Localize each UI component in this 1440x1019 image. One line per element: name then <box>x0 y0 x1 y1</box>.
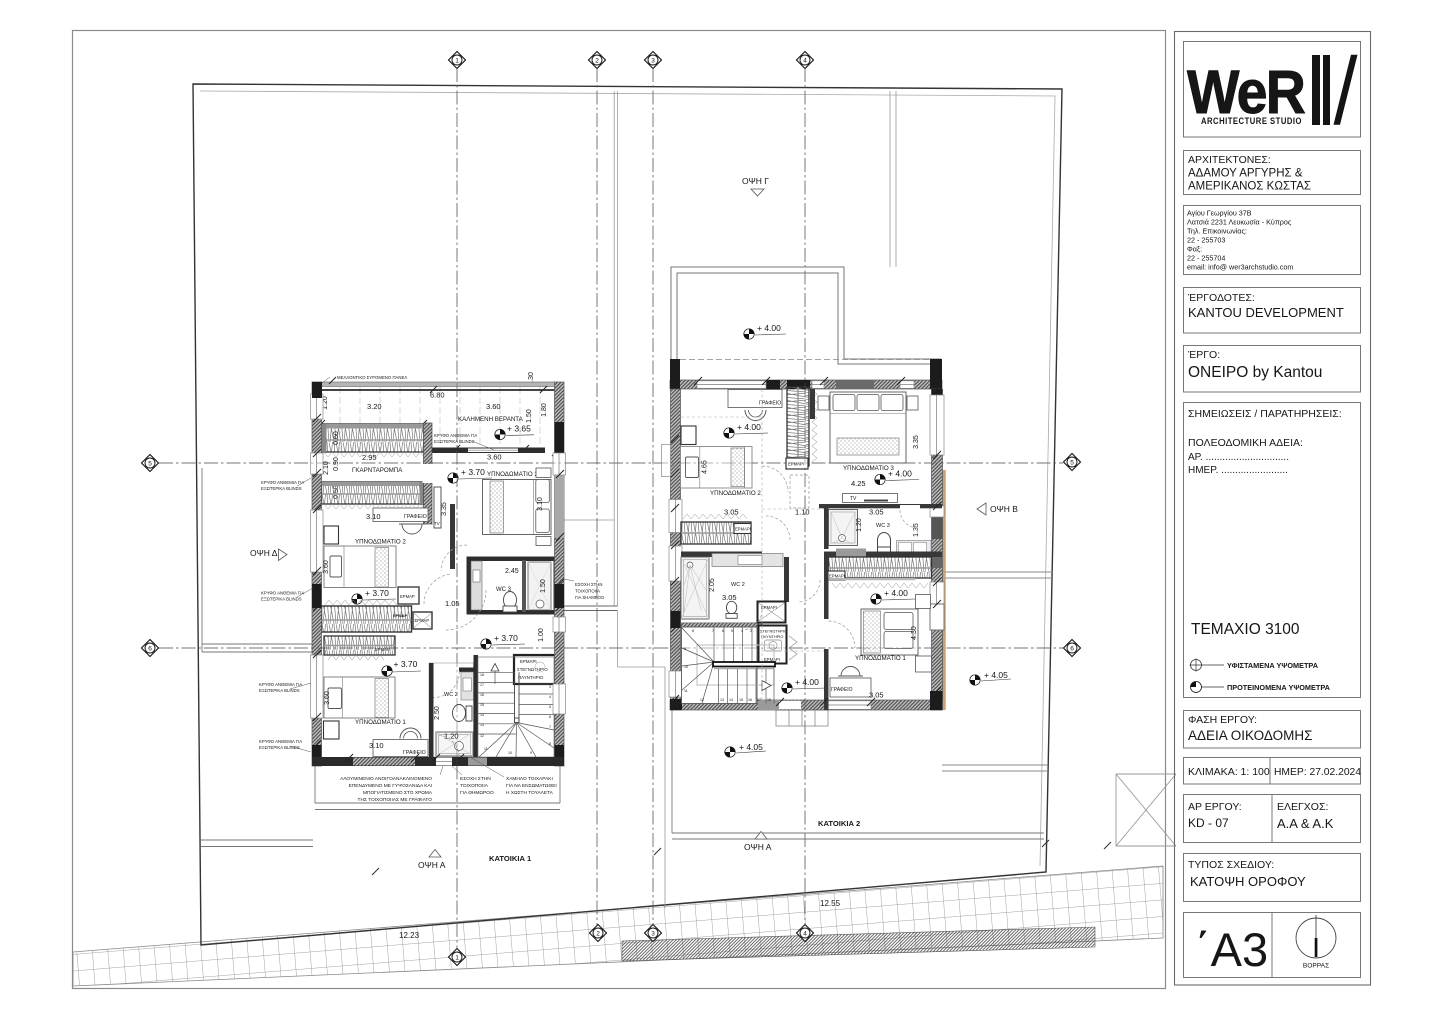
svg-text:3.35: 3.35 <box>441 502 448 516</box>
svg-text:3.05: 3.05 <box>869 691 884 700</box>
svg-text:11: 11 <box>684 689 688 693</box>
svg-text:ΥΠΝΟΔΩΜΑΤΙΟ 2: ΥΠΝΟΔΩΜΑΤΙΟ 2 <box>710 490 761 497</box>
svg-text:TV: TV <box>850 496 857 502</box>
svg-text:+ 4.00: + 4.00 <box>884 588 908 598</box>
svg-text:6: 6 <box>549 715 551 719</box>
svg-text:+ 3.70: + 3.70 <box>394 659 418 669</box>
svg-text:ΟΨΗ Δ: ΟΨΗ Δ <box>250 548 278 558</box>
svg-text:ΓΙΑ ΝΑ ΕΝΣΩΜΑΤΩΘΕΙ: ΓΙΑ ΝΑ ΕΝΣΩΜΑΤΩΘΕΙ <box>506 783 557 789</box>
svg-text:ΑΛΟΥΜΙΝΕΝΙΟ ΑΝΟΙΓΟΑΝΑΚΛΙΝΟΜΕΝΟ: ΑΛΟΥΜΙΝΕΝΙΟ ΑΝΟΙΓΟΑΝΑΚΛΙΝΟΜΕΝΟ <box>340 776 432 782</box>
svg-text:ΟΨΗ Β: ΟΨΗ Β <box>990 504 1018 514</box>
svg-text:ΕΛΕΓΧΟΣ:: ΕΛΕΓΧΟΣ: <box>1277 801 1328 813</box>
svg-text:ΠΟΛΕΟΔΟΜΙΚΗ ΑΔΕΙΑ:: ΠΟΛΕΟΔΟΜΙΚΗ ΑΔΕΙΑ: <box>1188 437 1303 449</box>
svg-text:+ 3.70: + 3.70 <box>461 467 485 477</box>
svg-text:ΣΗΜΕΙΩΣΕΙΣ / ΠΑΡΑΤΗΡΗΣΕΙΣ:: ΣΗΜΕΙΩΣΕΙΣ / ΠΑΡΑΤΗΡΗΣΕΙΣ: <box>1188 408 1342 420</box>
svg-text:1.20: 1.20 <box>856 518 863 532</box>
svg-text:ΥΠΝΟΔΩΜΑΤΙΟ 1: ΥΠΝΟΔΩΜΑΤΙΟ 1 <box>355 719 406 726</box>
svg-text:΄Α3: ΄Α3 <box>1195 923 1268 976</box>
svg-text:4: 4 <box>741 629 743 633</box>
svg-text:ΥΠΝΟΔΩΜΑΤΙΟ 3: ΥΠΝΟΔΩΜΑΤΙΟ 3 <box>843 465 894 472</box>
svg-text:4: 4 <box>803 58 807 65</box>
svg-text:3.60: 3.60 <box>324 691 331 705</box>
svg-text:12.55: 12.55 <box>820 899 841 908</box>
svg-text:3: 3 <box>651 58 655 65</box>
svg-text:3.10: 3.10 <box>366 512 381 521</box>
svg-text:8: 8 <box>692 629 694 633</box>
svg-text:ΒΟΡΡΑΣ: ΒΟΡΡΑΣ <box>1303 963 1329 970</box>
svg-text:12: 12 <box>480 734 484 738</box>
svg-text:ΑΡ. ..........................: ΑΡ. .............................. <box>1188 452 1289 463</box>
svg-text:+ 3.70: + 3.70 <box>494 633 518 643</box>
svg-text:ΑΔΑΜΟΥ ΑΡΓΥΡΗΣ &: ΑΔΑΜΟΥ ΑΡΓΥΡΗΣ & <box>1188 168 1303 180</box>
svg-text:ΕΣΟΧΗ ΣΤΗΝ: ΕΣΟΧΗ ΣΤΗΝ <box>575 582 603 587</box>
svg-text:7: 7 <box>712 629 714 633</box>
svg-text:10: 10 <box>684 665 688 669</box>
svg-text:ΕΞΩΤΕΡΙΚΑ BLINDS: ΕΞΩΤΕΡΙΚΑ BLINDS <box>434 439 475 444</box>
svg-text:ΗΜΕΡ: 27.02.2024: ΗΜΕΡ: 27.02.2024 <box>1274 767 1361 778</box>
svg-text:ΟΨΗ Α: ΟΨΗ Α <box>744 842 772 852</box>
svg-text:9: 9 <box>684 647 686 651</box>
svg-text:TV: TV <box>434 521 440 526</box>
svg-text:16: 16 <box>748 698 752 702</box>
svg-text:ΣΤΕΓΝΩΤΗΡΙΟ: ΣΤΕΓΝΩΤΗΡΙΟ <box>517 667 548 672</box>
svg-text:+ 4.05: + 4.05 <box>984 670 1008 680</box>
svg-text:+ 4.05: + 4.05 <box>739 742 763 752</box>
svg-text:2.05: 2.05 <box>709 578 716 592</box>
svg-text:WC 3: WC 3 <box>876 523 890 529</box>
svg-text:Λατσιά 2231 Λευκωσία - Κύπρος: Λατσιά 2231 Λευκωσία - Κύπρος <box>1187 218 1292 227</box>
svg-text:3.10: 3.10 <box>369 741 384 750</box>
svg-text:3.20: 3.20 <box>367 402 382 411</box>
svg-text:2.45: 2.45 <box>505 568 519 575</box>
svg-text:A.A & A.K: A.A & A.K <box>1277 816 1334 831</box>
svg-text:ΟΨΗ Α: ΟΨΗ Α <box>418 860 446 870</box>
svg-text:Η ΧΩΣΤΗ ΤΟΥΑΛΕΤΑ: Η ΧΩΣΤΗ ΤΟΥΑΛΕΤΑ <box>506 790 554 796</box>
svg-text:5: 5 <box>1070 460 1074 467</box>
svg-text:KD - 07: KD - 07 <box>1188 816 1229 830</box>
svg-text:12: 12 <box>700 698 704 702</box>
svg-text:ΚΛΙΜΑΚΑ: 1: 100: ΚΛΙΜΑΚΑ: 1: 100 <box>1188 766 1270 778</box>
svg-text:8: 8 <box>549 742 551 746</box>
svg-text:3: 3 <box>549 685 551 689</box>
svg-text:13: 13 <box>720 698 724 702</box>
svg-text:1.50: 1.50 <box>526 409 533 423</box>
svg-text:1.35: 1.35 <box>913 523 920 537</box>
svg-text:ΚΡΥΦΟ ΑΝΘΕΜΙΑ ΓΙΑ: ΚΡΥΦΟ ΑΝΘΕΜΙΑ ΓΙΑ <box>261 480 304 485</box>
svg-text:+ 4.00: + 4.00 <box>888 469 912 479</box>
svg-text:3.35: 3.35 <box>913 435 920 449</box>
svg-text:ΠΡΟΤΕΙΝΟΜΕΝΑ ΥΨΟΜΕΤΡΑ: ΠΡΟΤΕΙΝΟΜΕΝΑ ΥΨΟΜΕΤΡΑ <box>1227 683 1331 692</box>
svg-text:ΕΡΜΑΡΙ: ΕΡΜΑΡΙ <box>829 574 845 579</box>
svg-text:ΓΚΑΡΝΤΑΡΟΜΠΑ: ΓΚΑΡΝΤΑΡΟΜΠΑ <box>352 467 403 474</box>
svg-text:1: 1 <box>455 58 459 65</box>
svg-text:+ 4.00: + 4.00 <box>795 677 819 687</box>
svg-text:2.50: 2.50 <box>434 706 441 720</box>
svg-text:15: 15 <box>739 698 743 702</box>
svg-text:ARCHITECTURE STUDIO: ARCHITECTURE STUDIO <box>1201 116 1302 126</box>
svg-text:ΜΕΛΛΟΝΤΙΚΟ ΣΥΡΟΜΕΝΟ ΠΑΝΕΛ: ΜΕΛΛΟΝΤΙΚΟ ΣΥΡΟΜΕΝΟ ΠΑΝΕΛ <box>337 375 407 380</box>
svg-text:ΚΡΥΦΟ ΑΝΘΕΜΙΑ ΓΙΑ: ΚΡΥΦΟ ΑΝΘΕΜΙΑ ΓΙΑ <box>259 739 302 744</box>
svg-text:Αγίου Γεωργίου 37Β: Αγίου Γεωργίου 37Β <box>1187 209 1252 218</box>
svg-text:ΑΡΧΙΤΕΚΤΟΝΕΣ:: ΑΡΧΙΤΕΚΤΟΝΕΣ: <box>1188 154 1271 166</box>
svg-text:WC 2: WC 2 <box>444 692 458 698</box>
svg-text:ΚΑΤΟΙΚΙΑ 1: ΚΑΤΟΙΚΙΑ 1 <box>489 854 532 863</box>
svg-text:ΚΡΥΦΟ ΑΝΘΕΜΙΑ ΓΙΑ: ΚΡΥΦΟ ΑΝΘΕΜΙΑ ΓΙΑ <box>261 591 304 596</box>
svg-text:1.00: 1.00 <box>538 628 545 642</box>
svg-text:2: 2 <box>596 931 600 938</box>
svg-text:4.25: 4.25 <box>851 479 866 488</box>
svg-text:ΠΛΥΝΤΗΡΙΟ: ΠΛΥΝΤΗΡΙΟ <box>761 634 783 639</box>
svg-text:+ 4.00: + 4.00 <box>757 323 781 333</box>
svg-text:6.80: 6.80 <box>430 391 445 400</box>
svg-text:ΕΣΟΧΗ ΣΤΗΝ: ΕΣΟΧΗ ΣΤΗΝ <box>460 776 491 782</box>
svg-text:KANTOU DEVELOPMENT: KANTOU DEVELOPMENT <box>1188 305 1344 320</box>
svg-text:ΚΑΤΟΙΚΙΑ 2: ΚΑΤΟΙΚΙΑ 2 <box>818 819 860 828</box>
svg-text:ΚΡΥΦΟ ΑΝΘΕΜΙΑ ΓΙΑ: ΚΡΥΦΟ ΑΝΘΕΜΙΑ ΓΙΑ <box>434 433 477 438</box>
svg-text:ΕΡΜΑΡ: ΕΡΜΑΡ <box>415 618 430 623</box>
svg-text:ΕΡΜΑΡΙ: ΕΡΜΑΡΙ <box>520 659 537 664</box>
svg-text:ΑΜΕΡΙΚΑΝΟΣ ΚΩΣΤΑΣ: ΑΜΕΡΙΚΑΝΟΣ ΚΩΣΤΑΣ <box>1188 181 1311 193</box>
svg-text:ΕΡΜΑΡ: ΕΡΜΑΡ <box>393 613 408 618</box>
svg-text:13: 13 <box>480 723 484 727</box>
svg-text:1.05: 1.05 <box>445 599 460 608</box>
svg-text:ΓΡΑΦΕΙΟ: ΓΡΑΦΕΙΟ <box>759 401 781 407</box>
svg-text:1: 1 <box>455 955 459 962</box>
svg-text:ΕΡΜΑΡΙ: ΕΡΜΑΡΙ <box>735 527 751 532</box>
svg-text:ΥΦΙΣΤΑΜΕΝΑ ΥΨΟΜΕΤΡΑ: ΥΦΙΣΤΑΜΕΝΑ ΥΨΟΜΕΤΡΑ <box>1227 661 1319 670</box>
svg-text:ΕΞΩΤΕΡΙΚΑ BLINDS: ΕΞΩΤΕΡΙΚΑ BLINDS <box>259 745 300 750</box>
svg-text:Φαξ:: Φαξ: <box>1187 245 1202 254</box>
svg-text:16: 16 <box>480 693 484 697</box>
svg-text:3.60: 3.60 <box>487 453 502 462</box>
svg-text:4: 4 <box>549 695 551 699</box>
svg-text:22 - 255703: 22 - 255703 <box>1187 236 1225 245</box>
svg-text:3.05: 3.05 <box>722 593 737 602</box>
svg-text:14: 14 <box>480 713 484 717</box>
svg-text:3: 3 <box>750 629 752 633</box>
svg-text:6: 6 <box>722 629 724 633</box>
svg-text:11: 11 <box>484 747 488 751</box>
svg-text:18: 18 <box>480 673 484 677</box>
svg-text:ΚΑΛΗΜΕΝΗ ΒΕΡΑΝΤΑ: ΚΑΛΗΜΕΝΗ ΒΕΡΑΝΤΑ <box>458 416 524 423</box>
svg-text:3: 3 <box>651 931 655 938</box>
svg-text:ΜΠΟΓΙΑΤΙΣΜΕΝΟ ΣΤΟ ΧΡΩΜΑ: ΜΠΟΓΙΑΤΙΣΜΕΝΟ ΣΤΟ ΧΡΩΜΑ <box>363 790 433 796</box>
svg-text:email: info@ wer3archstudio.co: email: info@ wer3archstudio.com <box>1187 263 1293 272</box>
svg-text:ΥΠΝΟΔΩΜΑΤΙΟ 2: ΥΠΝΟΔΩΜΑΤΙΟ 2 <box>355 539 406 546</box>
svg-text:+ 3.65: + 3.65 <box>507 424 531 434</box>
svg-text:ΕΡΜΑΡΙ: ΕΡΜΑΡΙ <box>788 462 804 467</box>
svg-text:ONEIPO by Kantou: ONEIPO by Kantou <box>1188 364 1322 381</box>
svg-text:ΓΡΑΦΕΙΟ: ΓΡΑΦΕΙΟ <box>831 687 853 693</box>
svg-text:2: 2 <box>595 58 599 65</box>
svg-text:7: 7 <box>549 725 551 729</box>
svg-text:3.60: 3.60 <box>323 560 330 574</box>
svg-text:ΕΠΕΝΔΥΜΕΝΟ ΜΕ ΓΥΨΟΣΑΝΙΔΑ ΚΑΙ: ΕΠΕΝΔΥΜΕΝΟ ΜΕ ΓΥΨΟΣΑΝΙΔΑ ΚΑΙ <box>349 783 432 789</box>
svg-text:3.05: 3.05 <box>869 508 884 517</box>
svg-text:14: 14 <box>729 698 733 702</box>
svg-text:ΚΡΥΦΟ ΑΝΘΕΜΙΑ ΓΙΑ: ΚΡΥΦΟ ΑΝΘΕΜΙΑ ΓΙΑ <box>259 682 302 687</box>
svg-text:17: 17 <box>757 698 761 702</box>
svg-text:4: 4 <box>803 931 807 938</box>
svg-text:5: 5 <box>731 629 733 633</box>
svg-text:4.65: 4.65 <box>702 460 709 474</box>
svg-text:ΑΡ ΕΡΓΟΥ:: ΑΡ ΕΡΓΟΥ: <box>1188 801 1242 813</box>
svg-text:.30: .30 <box>528 372 535 382</box>
svg-text:ΤΗΣ ΤΟΙΧΟΠΟΙΙΑΣ ΜΕ ΓΡΑΦΙΑΤΟ: ΤΗΣ ΤΟΙΧΟΠΟΙΙΑΣ ΜΕ ΓΡΑΦΙΑΤΟ <box>358 797 433 803</box>
svg-text:ΠΛΥΝΤΗΡΙΟ: ΠΛΥΝΤΗΡΙΟ <box>518 675 544 680</box>
svg-text:Τηλ. Επικοινωνίας:: Τηλ. Επικοινωνίας: <box>1187 227 1247 236</box>
svg-text:ΦΑΣΗ ΕΡΓΟΥ:: ΦΑΣΗ ΕΡΓΟΥ: <box>1188 714 1257 726</box>
svg-text:ΕΡΜΑΡ: ΕΡΜΑΡ <box>400 594 415 599</box>
svg-text:ΣΤΕΓΝΩΤΗΡΙΟ: ΣΤΕΓΝΩΤΗΡΙΟ <box>760 629 787 634</box>
svg-text:6: 6 <box>148 646 152 653</box>
svg-text:ΧΑΜΗΛΟ ΤΟΙΧΑΡΑΚΙ: ΧΑΜΗΛΟ ΤΟΙΧΑΡΑΚΙ <box>506 776 553 782</box>
svg-text:0.60: 0.60 <box>333 431 340 445</box>
svg-text:ΓΡΑΦΕΙΟ: ΓΡΑΦΕΙΟ <box>403 750 426 756</box>
svg-text:ΤΥΠΟΣ ΣΧΕΔΙΟΥ:: ΤΥΠΟΣ ΣΧΕΔΙΟΥ: <box>1188 859 1274 871</box>
svg-text:ΈΡΓΟ:: ΈΡΓΟ: <box>1187 349 1220 361</box>
svg-text:2.95: 2.95 <box>362 453 377 462</box>
svg-text:17: 17 <box>480 683 484 687</box>
svg-text:9: 9 <box>530 751 532 755</box>
svg-text:10: 10 <box>508 751 512 755</box>
svg-text:1.80: 1.80 <box>541 403 548 417</box>
svg-text:3.10: 3.10 <box>537 497 544 511</box>
svg-text:4.30: 4.30 <box>911 626 918 640</box>
svg-text:ΈΡΓΟΔΟΤΕΣ:: ΈΡΓΟΔΟΤΕΣ: <box>1187 292 1255 304</box>
svg-text:ΤΟΙΧΟΠΟΙΙΑ: ΤΟΙΧΟΠΟΙΙΑ <box>575 589 600 594</box>
svg-text:+ 4.00: + 4.00 <box>737 422 761 432</box>
svg-text:ΤΟΙΧΟΠΟΙΙΑ: ΤΟΙΧΟΠΟΙΙΑ <box>460 783 489 789</box>
svg-text:1.20: 1.20 <box>444 732 459 741</box>
svg-text:3.60: 3.60 <box>486 402 501 411</box>
svg-text:22 - 255704: 22 - 255704 <box>1187 254 1225 263</box>
svg-text:ΑΔΕΙΑ ΟΙΚΟΔΟΜΗΣ: ΑΔΕΙΑ ΟΙΚΟΔΟΜΗΣ <box>1188 728 1312 743</box>
svg-text:5: 5 <box>148 461 152 468</box>
svg-text:ΕΞΩΤΕΡΙΚΑ BLINDS: ΕΞΩΤΕΡΙΚΑ BLINDS <box>259 688 300 693</box>
svg-text:ΥΠΝΟΔΩΜΑΤΙΟ 1: ΥΠΝΟΔΩΜΑΤΙΟ 1 <box>855 655 906 662</box>
svg-text:12.23: 12.23 <box>399 931 420 940</box>
svg-text:ΓΙΑ SHAMPOO: ΓΙΑ SHAMPOO <box>575 595 605 600</box>
svg-text:ΕΞΩΤΕΡΙΚΑ BLINDS: ΕΞΩΤΕΡΙΚΑ BLINDS <box>261 486 302 491</box>
svg-text:ΚΑΤΟΨΗ ΟΡΟΦΟΥ: ΚΑΤΟΨΗ ΟΡΟΦΟΥ <box>1190 874 1306 889</box>
svg-text:+ 3.70: + 3.70 <box>365 588 389 598</box>
svg-text:ΕΡΜΑΡΙ: ΕΡΜΑΡΙ <box>761 605 777 610</box>
svg-text:ΓΙΑ ΘΗΜΩΡΟΟ: ΓΙΑ ΘΗΜΩΡΟΟ <box>460 790 494 796</box>
svg-text:1.50: 1.50 <box>540 579 547 593</box>
svg-text:0.90: 0.90 <box>333 457 340 471</box>
svg-text:ΓΡΑΦΕΙΟ: ΓΡΑΦΕΙΟ <box>404 514 427 520</box>
svg-text:5: 5 <box>549 705 551 709</box>
svg-text:ΥΠΝΟΔΩΜΑΤΙΟ 3: ΥΠΝΟΔΩΜΑΤΙΟ 3 <box>487 471 538 478</box>
svg-text:ΤΕΜΑΧΙΟ 3100: ΤΕΜΑΧΙΟ 3100 <box>1191 621 1300 638</box>
svg-text:18: 18 <box>767 698 771 702</box>
svg-text:15: 15 <box>480 703 484 707</box>
svg-text:ΟΨΗ Γ: ΟΨΗ Γ <box>742 176 769 186</box>
svg-text:6: 6 <box>1070 646 1074 653</box>
svg-text:ΗΜΕΡ. ........................: ΗΜΕΡ. ........................ <box>1188 465 1288 476</box>
svg-text:ΕΞΩΤΕΡΙΚΑ BLINDS: ΕΞΩΤΕΡΙΚΑ BLINDS <box>261 597 302 602</box>
svg-text:WC 2: WC 2 <box>731 582 745 588</box>
